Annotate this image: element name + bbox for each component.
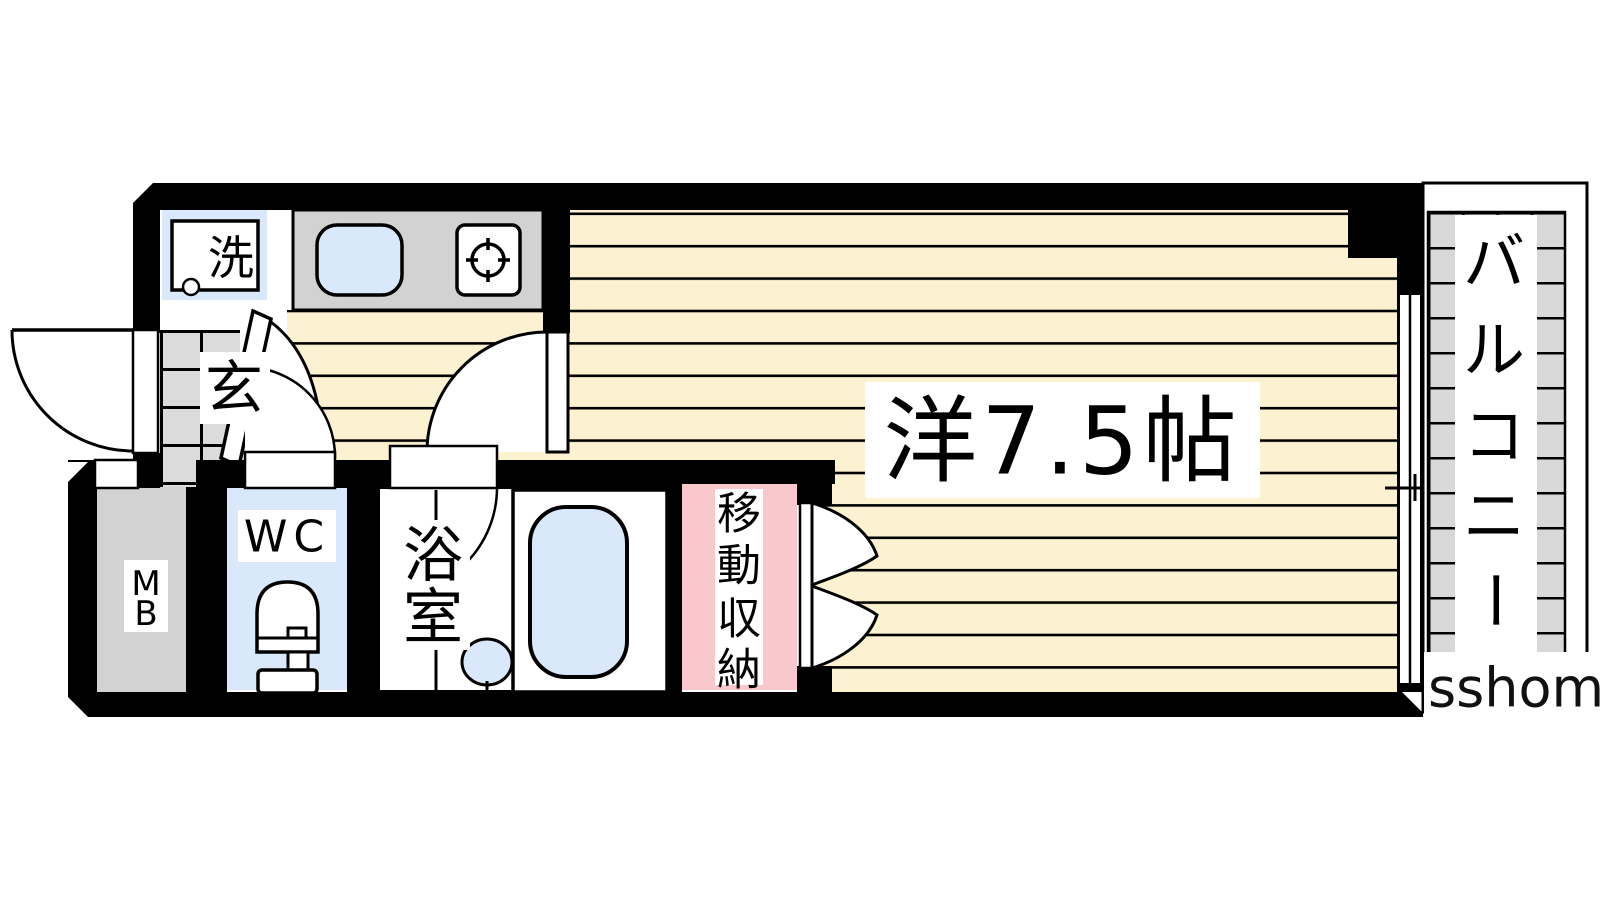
balcony-label-char: ー bbox=[1458, 569, 1531, 631]
balcony: バ ル コ ニ ー bbox=[1423, 183, 1587, 712]
meter-box-label-char: B bbox=[134, 594, 157, 634]
wall-storage-pillar-bottom bbox=[797, 666, 832, 696]
toilet-icon bbox=[257, 582, 318, 693]
storage-label-char: 移 bbox=[717, 489, 761, 540]
bathroom-opening bbox=[390, 446, 497, 488]
living-label: 洋7.5帖 bbox=[883, 388, 1241, 497]
meter-box-opening bbox=[95, 460, 138, 488]
wall-left-lower bbox=[68, 460, 97, 717]
storage-door-track bbox=[800, 503, 812, 668]
balcony-label-char: ル bbox=[1463, 314, 1525, 387]
storage-label-char: 収 bbox=[717, 594, 761, 645]
storage-label-char: 動 bbox=[717, 541, 761, 592]
wall-left-upper bbox=[133, 183, 160, 333]
laundry-space: 洗 bbox=[162, 210, 267, 300]
living-room-door-leaf-icon bbox=[547, 332, 568, 452]
kitchen-counter bbox=[293, 210, 543, 310]
balcony-label-char: ニ bbox=[1463, 480, 1525, 553]
watermark-text: sshome bbox=[1428, 657, 1600, 720]
balcony-label-char: バ bbox=[1463, 226, 1525, 299]
storage-label-char: 納 bbox=[717, 645, 761, 696]
entrance-opening bbox=[133, 330, 158, 453]
laundry-label: 洗 bbox=[208, 231, 254, 285]
bathroom-label-char: 浴 bbox=[403, 521, 463, 591]
faucet-icon bbox=[183, 279, 199, 295]
wall-window-header bbox=[1397, 258, 1423, 298]
floorplan-canvas: 洗 バ ル コ bbox=[0, 0, 1600, 900]
wall-bottom bbox=[68, 692, 1423, 717]
wall-kitchen-pillar bbox=[543, 183, 570, 333]
wall-mb-wc-divider bbox=[186, 487, 227, 697]
entrance-label: 玄 bbox=[205, 354, 263, 422]
wc-opening bbox=[245, 452, 335, 488]
wall-top bbox=[133, 183, 1423, 210]
stove-icon bbox=[457, 225, 520, 295]
bathtub-icon bbox=[530, 507, 627, 677]
toilet-label: WC bbox=[244, 512, 330, 563]
wall-storage-pillar-top bbox=[797, 460, 832, 505]
watermark: sshome bbox=[1424, 652, 1600, 720]
balcony-label-char: コ bbox=[1463, 400, 1525, 473]
bathroom-label-char: 室 bbox=[403, 583, 463, 653]
sink-icon bbox=[317, 225, 402, 295]
wall-top-right-notch bbox=[1348, 183, 1423, 258]
wall-wc-bath-divider bbox=[347, 487, 378, 697]
